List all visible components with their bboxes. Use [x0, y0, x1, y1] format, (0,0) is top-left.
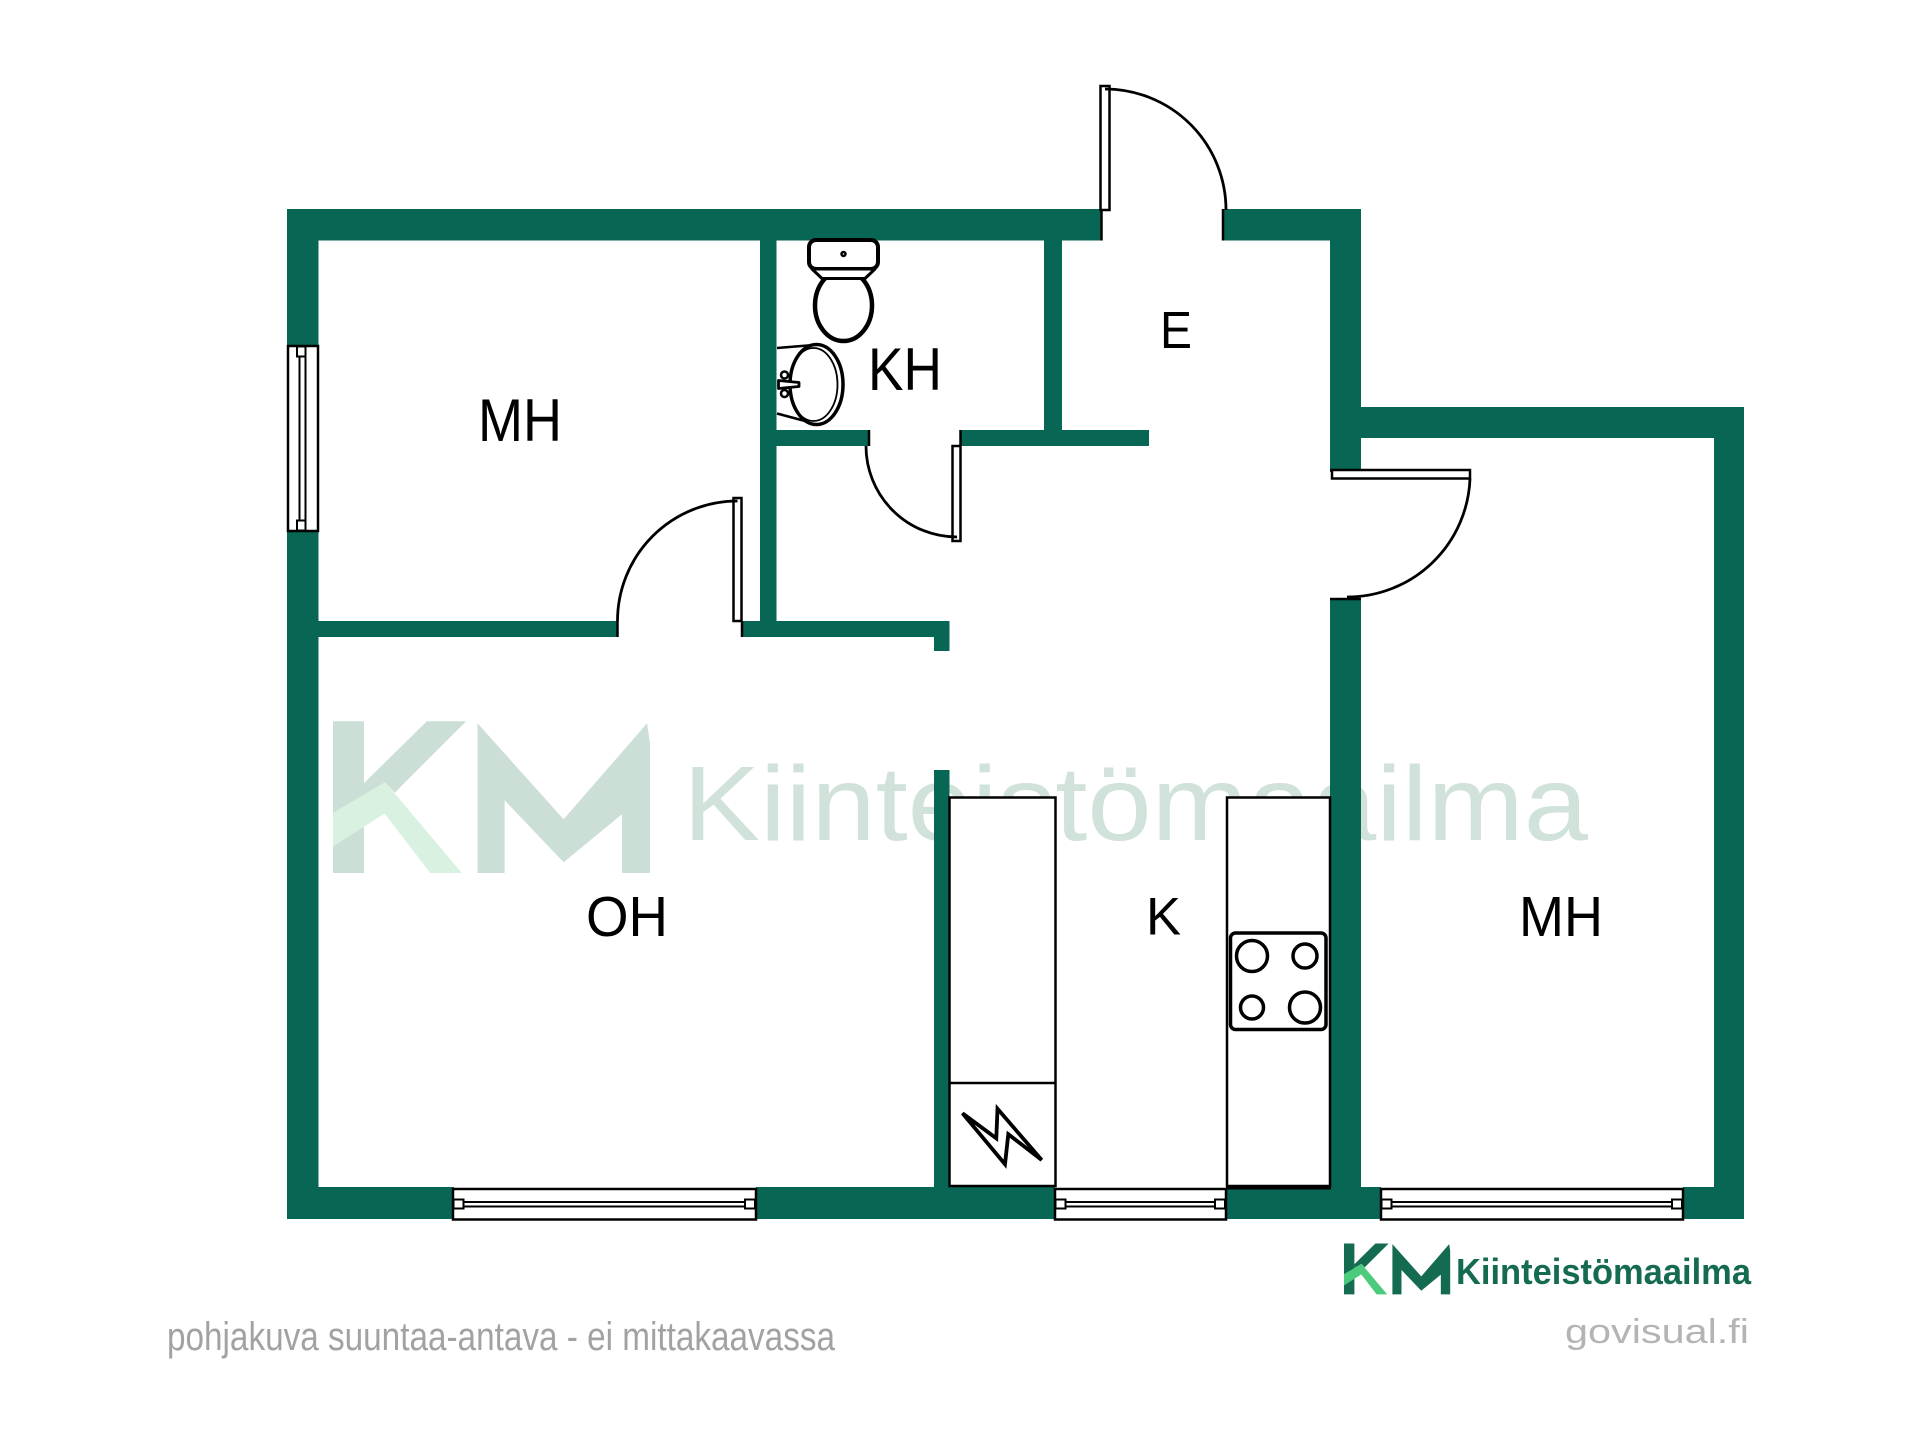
svg-text:Kiinteistömaailma: Kiinteistömaailma — [683, 745, 1588, 863]
svg-text:Kiinteistömaailma: Kiinteistömaailma — [1456, 1251, 1752, 1292]
svg-text:MH: MH — [478, 387, 562, 454]
svg-text:KH: KH — [868, 336, 942, 403]
svg-text:OH: OH — [586, 885, 668, 949]
svg-text:govisual.fi: govisual.fi — [1565, 1313, 1749, 1351]
svg-text:K: K — [1146, 888, 1181, 947]
svg-text:MH: MH — [1519, 885, 1603, 949]
svg-text:E: E — [1160, 302, 1192, 360]
svg-text:pohjakuva suuntaa-antava - ei: pohjakuva suuntaa-antava - ei mittakaava… — [167, 1315, 836, 1359]
